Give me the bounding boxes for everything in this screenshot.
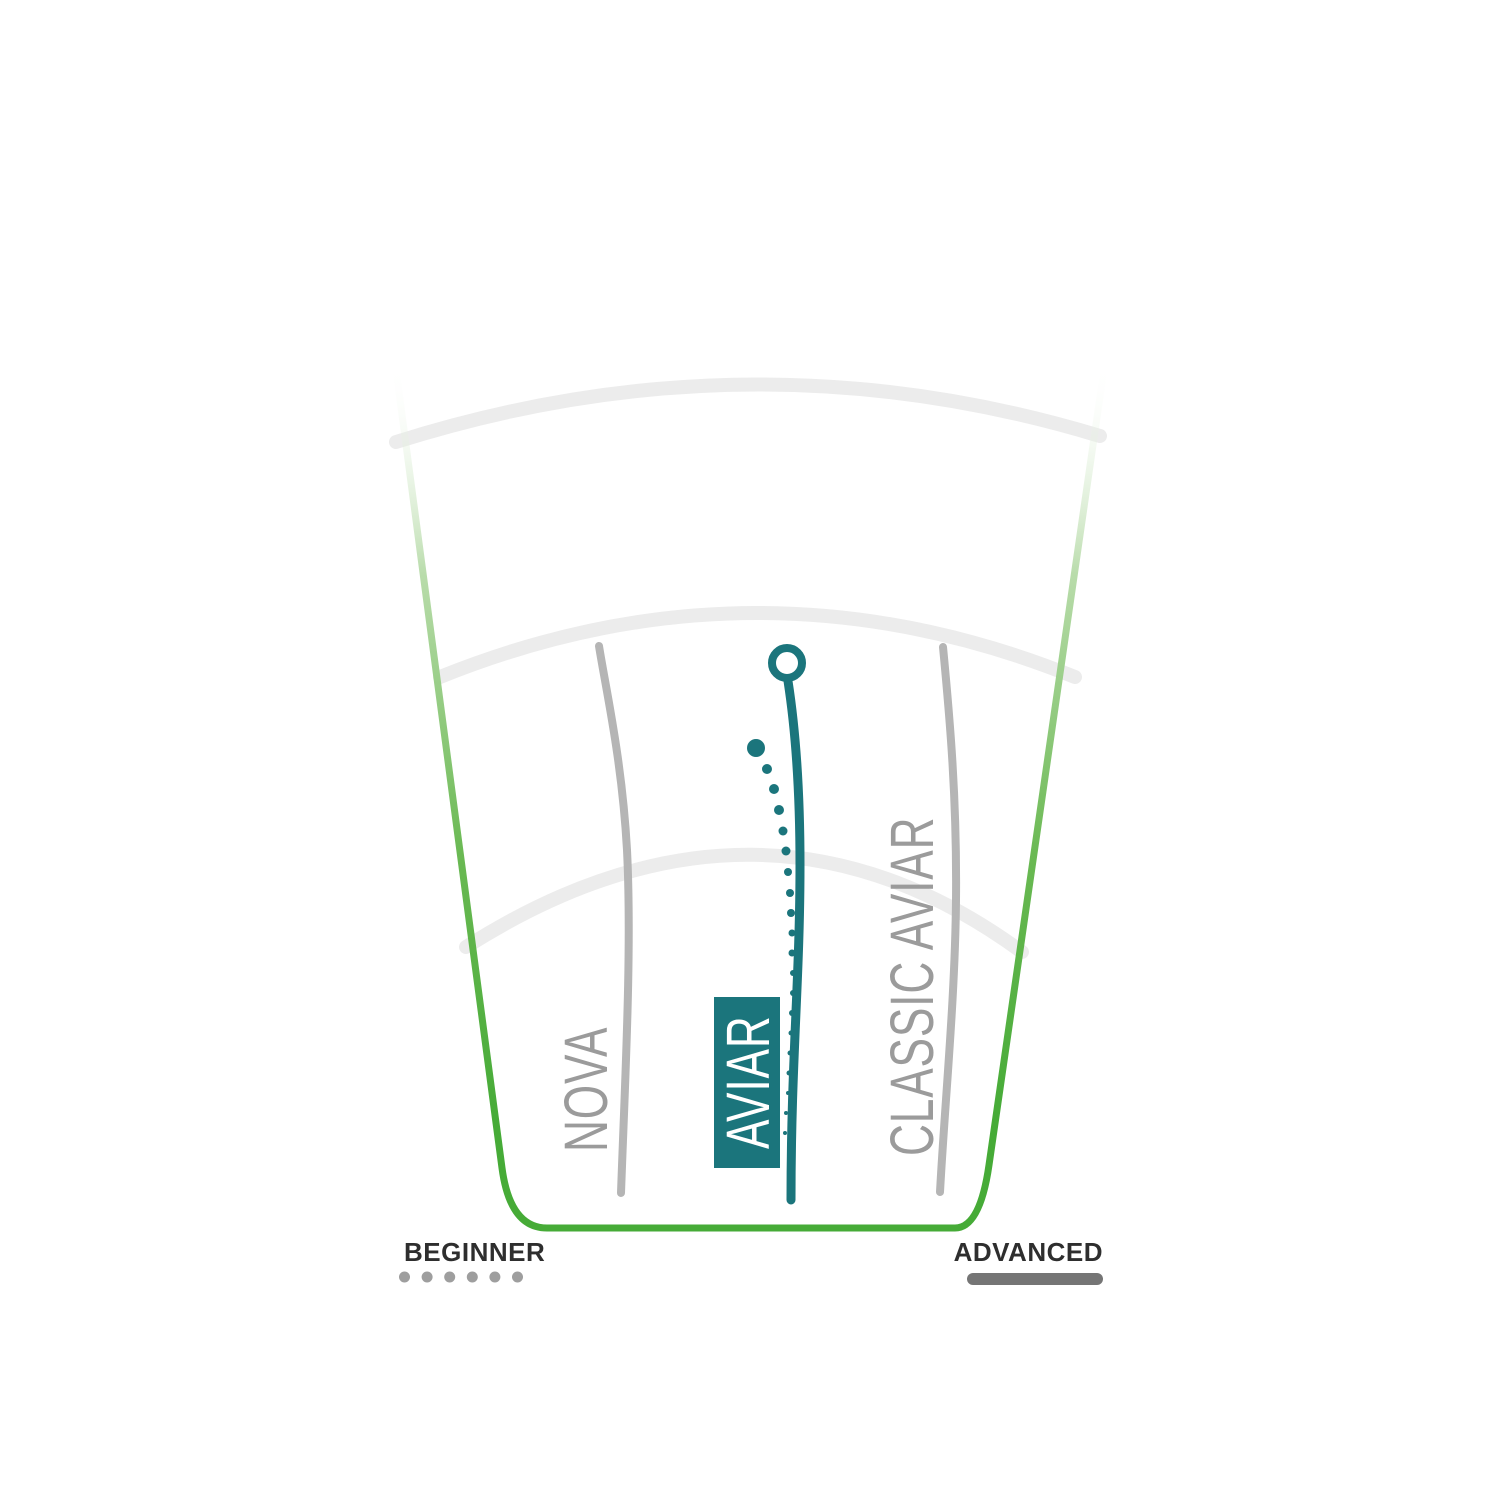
beginner-dot (422, 1272, 433, 1283)
flight-diagram-svg: NOVA CLASSIC AVIAR AVIAR BEGINNER ADVANC… (0, 0, 1500, 1500)
legend-advanced: ADVANCED (954, 1237, 1103, 1285)
advanced-solid-marker (967, 1273, 1103, 1285)
beginner-dot (444, 1272, 455, 1283)
beginner-dot (399, 1272, 410, 1283)
aviar-landing-circle (772, 648, 802, 678)
fade-dot (783, 1131, 787, 1135)
fade-dot (769, 784, 779, 794)
beginner-label: BEGINNER (404, 1237, 545, 1267)
fade-dot (784, 868, 792, 876)
beginner-dotted-marker (399, 1272, 523, 1283)
beginner-dot (512, 1272, 523, 1283)
distance-guide-arcs (396, 384, 1100, 952)
fade-dot (787, 909, 795, 917)
legend-beginner: BEGINNER (399, 1237, 545, 1283)
fade-dot (784, 1111, 788, 1115)
aviar-flight-path (788, 681, 800, 1200)
guide-arc-far (396, 384, 1100, 442)
beginner-dot (489, 1272, 500, 1283)
nova-label: NOVA (553, 1027, 621, 1152)
classic-aviar-label: CLASSIC AVIAR (879, 817, 947, 1156)
guide-arc-mid (440, 613, 1075, 677)
fade-dot (779, 827, 788, 836)
fade-dot (782, 847, 791, 856)
fade-dot (786, 889, 794, 897)
fade-dot (747, 739, 765, 757)
beginner-dot (467, 1272, 478, 1283)
putter-flight-diagram: NOVA CLASSIC AVIAR AVIAR BEGINNER ADVANC… (0, 0, 1500, 1500)
advanced-label: ADVANCED (954, 1237, 1103, 1267)
aviar-label: AVIAR (715, 1015, 783, 1149)
fade-dot (774, 805, 784, 815)
fade-dot (762, 764, 772, 774)
